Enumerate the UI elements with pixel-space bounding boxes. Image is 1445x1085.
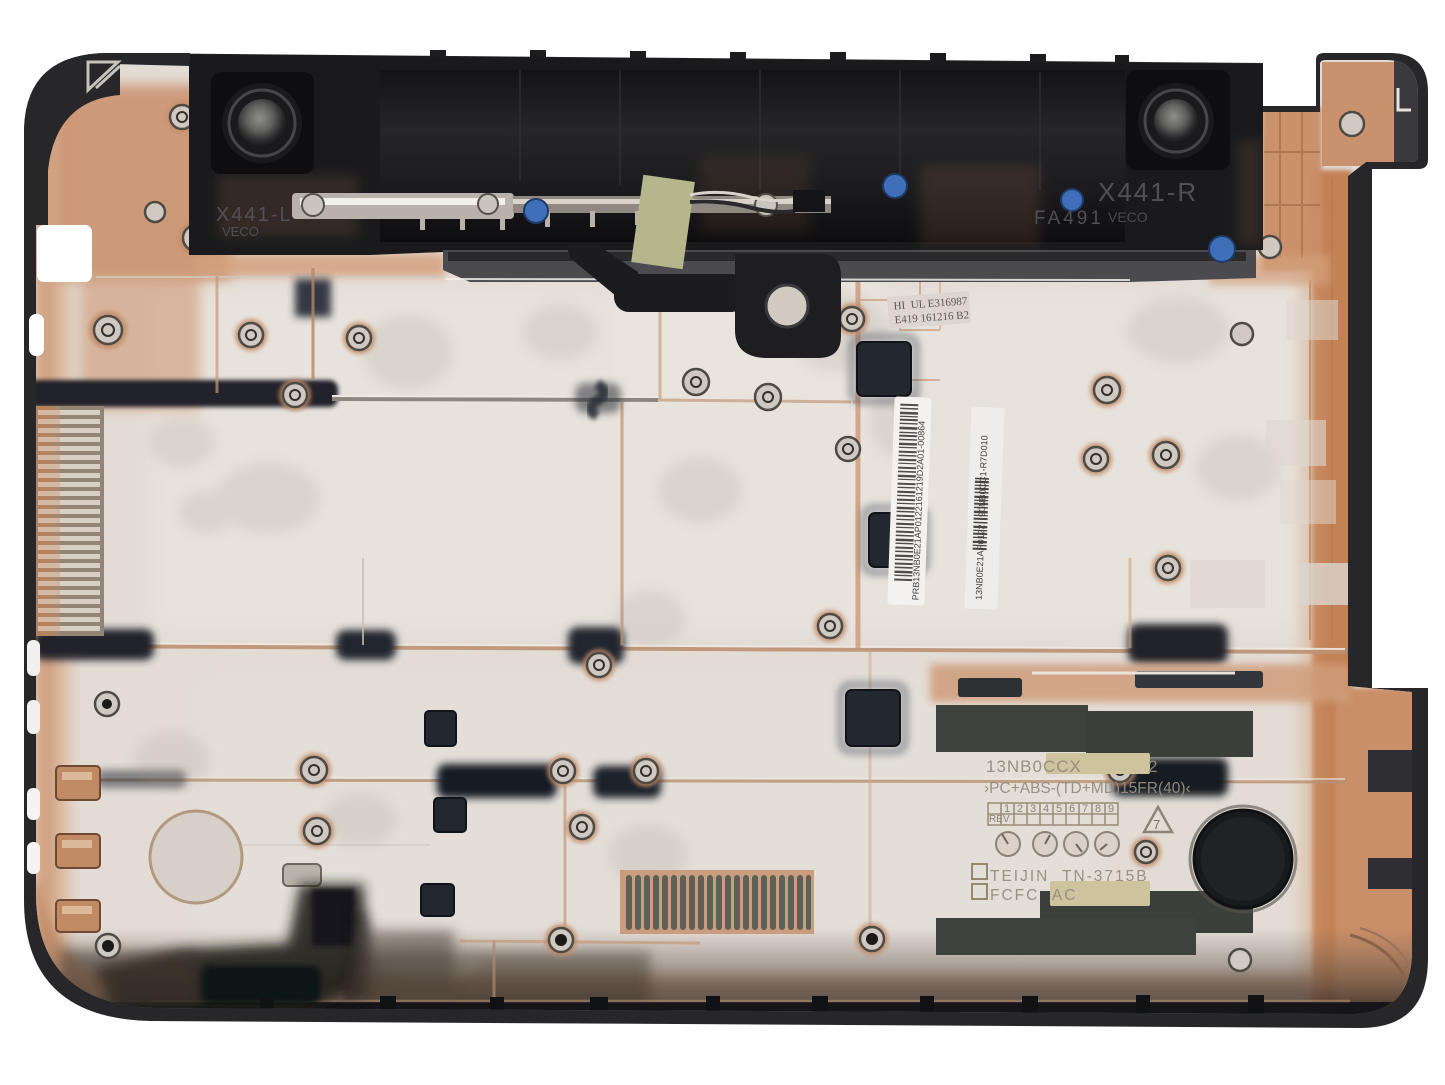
svg-text:VECO: VECO (1108, 209, 1148, 225)
svg-text:7: 7 (1153, 817, 1160, 832)
svg-text:›PC+ABS-(TD+MD)15FR(40)‹: ›PC+ABS-(TD+MD)15FR(40)‹ (984, 780, 1191, 797)
svg-text:9: 9 (1108, 803, 1114, 815)
svg-text:8: 8 (1095, 803, 1101, 815)
svg-text:FCFC AC: FCFC AC (990, 887, 1077, 904)
svg-text:X441-L: X441-L (216, 204, 293, 226)
svg-text:13NB0CCX: 13NB0CCX (986, 757, 1082, 776)
svg-text:7: 7 (1082, 803, 1088, 815)
svg-text:3: 3 (1030, 803, 1036, 815)
svg-text:5: 5 (1056, 803, 1062, 815)
svg-text:TEIJIN TN-3715B: TEIJIN TN-3715B (990, 868, 1149, 885)
svg-text:REV: REV (989, 814, 1010, 825)
svg-text:4: 4 (1043, 803, 1049, 815)
svg-text:FA491: FA491 (1034, 208, 1104, 229)
svg-text:2: 2 (1017, 803, 1023, 815)
svg-text:1: 1 (1004, 803, 1010, 815)
svg-text:2: 2 (1148, 757, 1157, 776)
svg-text:6: 6 (1069, 803, 1075, 815)
svg-text:VECO: VECO (222, 224, 259, 239)
svg-text:X441-R: X441-R (1098, 177, 1198, 207)
